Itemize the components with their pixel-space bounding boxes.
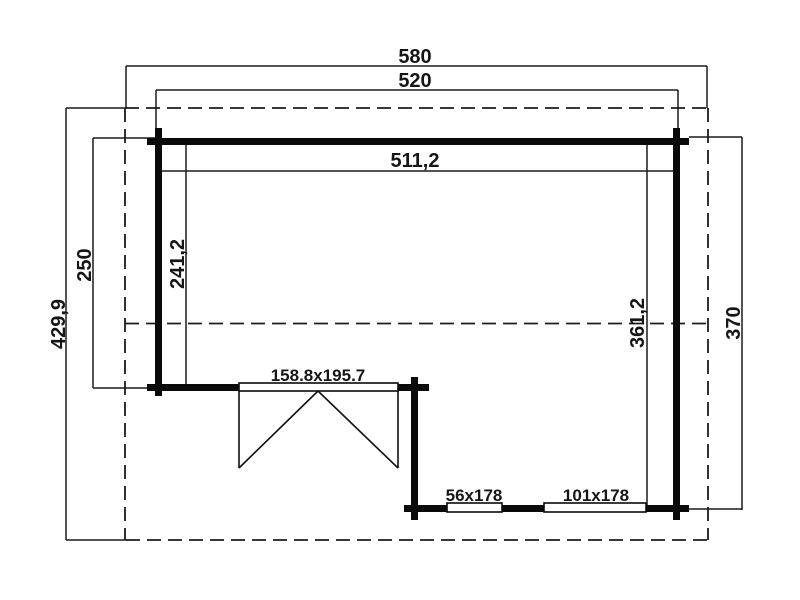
wall-back [147, 138, 689, 145]
wall-front-left-of-door [147, 384, 239, 391]
wall-porch-side [411, 377, 418, 520]
label-roof-width: 580 [398, 46, 431, 68]
walls [147, 128, 689, 520]
door-swing-left [239, 391, 318, 468]
double-door [239, 383, 398, 468]
label-window-small-size: 56x178 [446, 486, 503, 505]
wall-bottom-middle-segment [502, 505, 544, 512]
label-interior-width: 511,2 [391, 150, 440, 172]
floor-plan-drawing: 580 520 511,2 429,9 250 241,2 361,2 370 … [0, 0, 800, 600]
floor-plan-canvas: 580 520 511,2 429,9 250 241,2 361,2 370 … [0, 0, 800, 600]
wall-bottom-left-segment [404, 505, 447, 512]
label-roof-depth: 429,9 [48, 299, 70, 349]
label-interior-front-depth: 241,2 [167, 239, 189, 289]
label-exterior-width: 520 [398, 70, 431, 92]
dimension-labels: 580 520 511,2 429,9 250 241,2 361,2 370 … [48, 46, 745, 505]
label-window-large-size: 101x178 [563, 486, 629, 505]
wall-left [155, 128, 162, 396]
label-door-size: 158.8x195.7 [271, 366, 366, 385]
label-exterior-depth: 370 [723, 306, 745, 339]
label-front-section-depth: 250 [74, 248, 96, 281]
label-interior-main-depth: 361,2 [627, 298, 649, 348]
door-swing-right [318, 391, 398, 468]
wall-bottom-right-segment [646, 505, 689, 512]
wall-right [673, 128, 680, 520]
